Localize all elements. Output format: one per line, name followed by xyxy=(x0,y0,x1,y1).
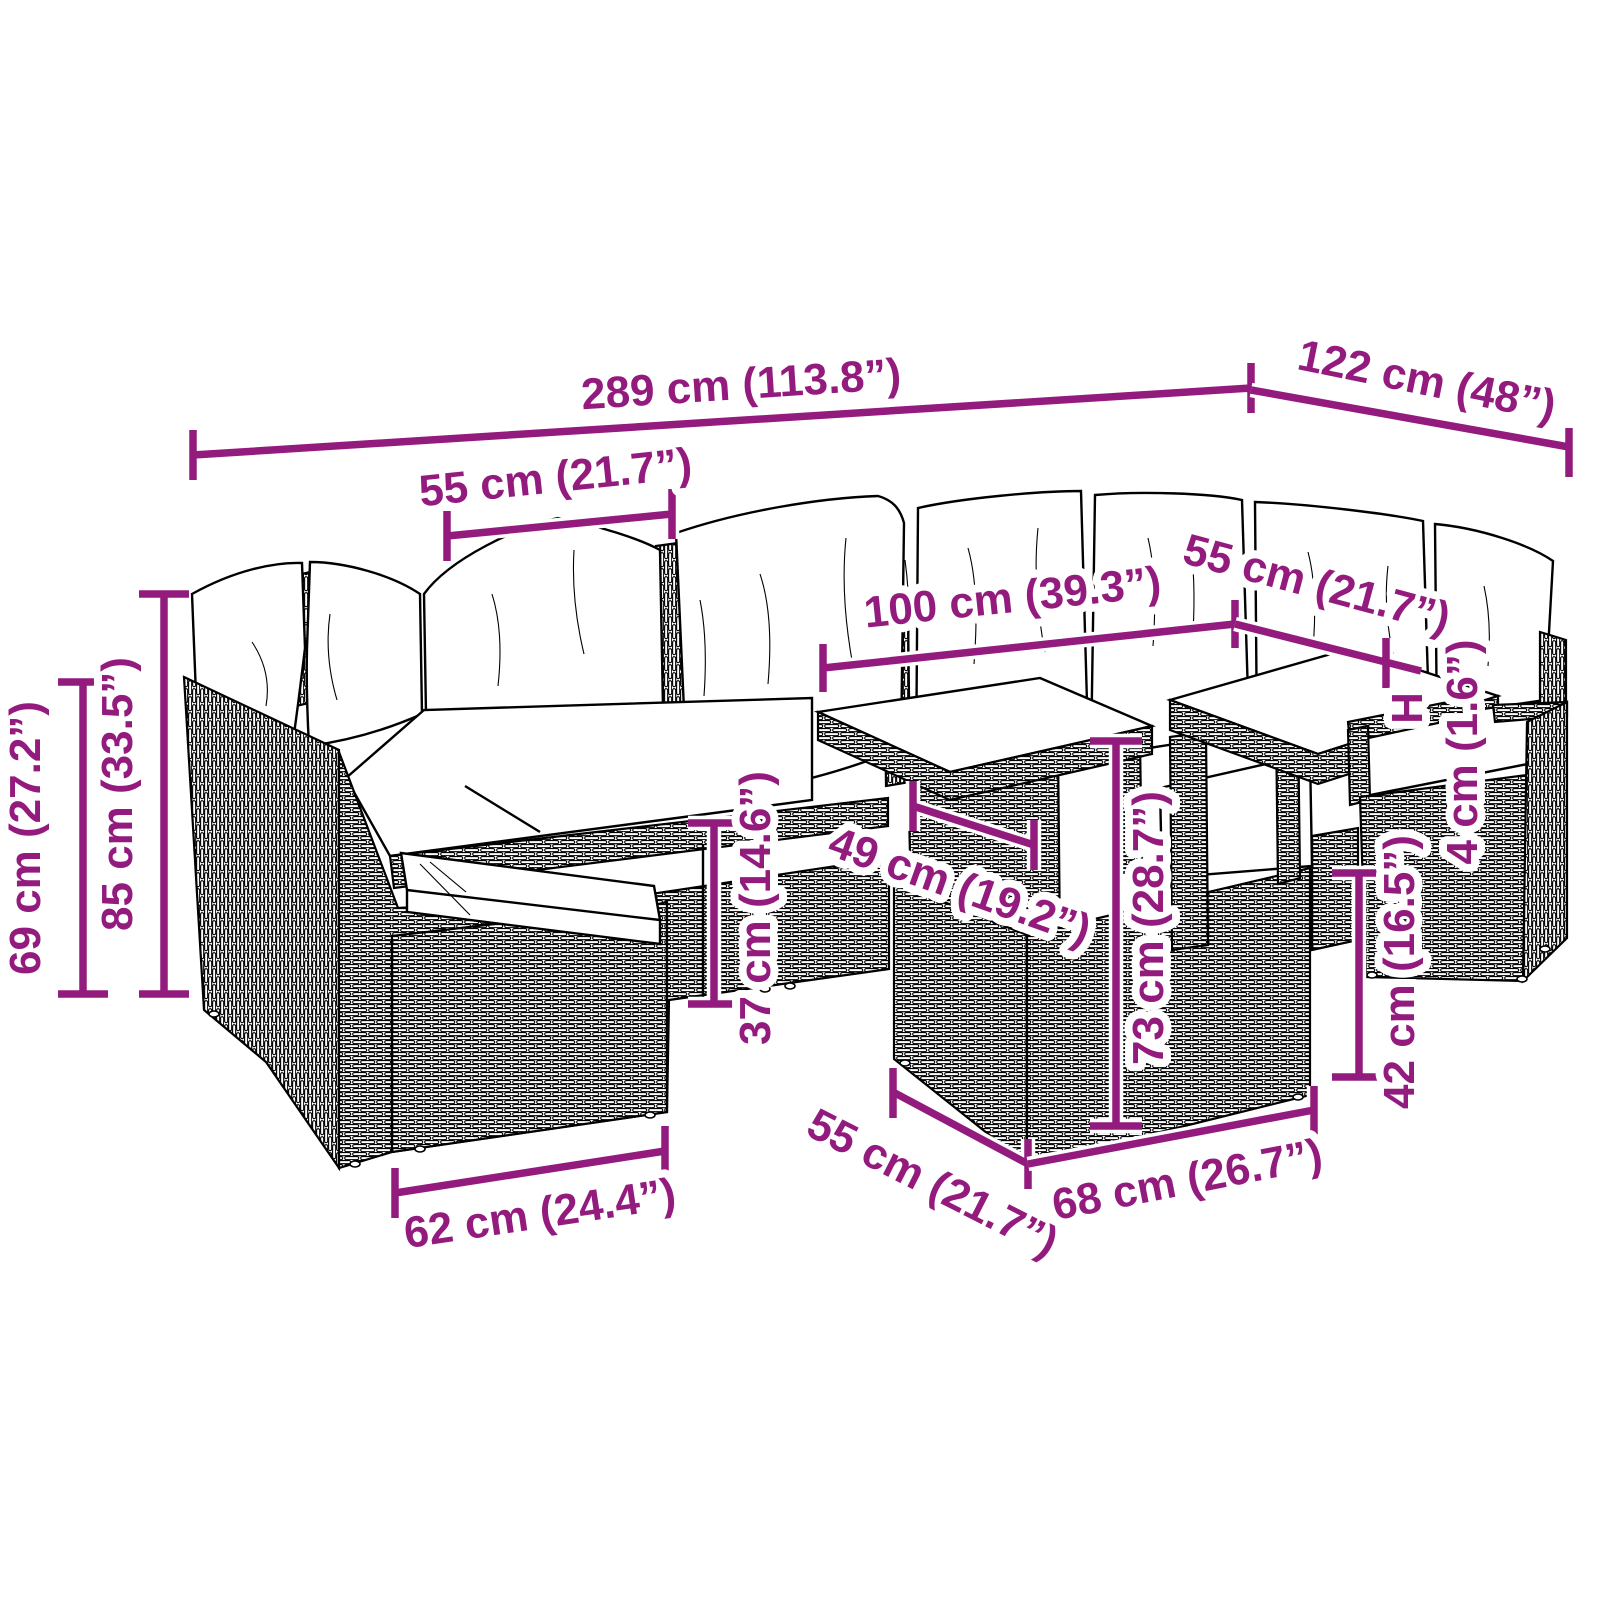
svg-text:42 cm (16.5”): 42 cm (16.5”) xyxy=(1375,835,1424,1109)
svg-text:4 cm (1.6”): 4 cm (1.6”) xyxy=(1438,640,1487,865)
svg-text:H: H xyxy=(1383,692,1432,724)
svg-text:69 cm (27.2”): 69 cm (27.2”) xyxy=(1,701,50,975)
svg-text:37 cm (14.6”): 37 cm (14.6”) xyxy=(731,771,780,1045)
svg-text:85 cm (33.5”): 85 cm (33.5”) xyxy=(93,657,142,931)
svg-text:73 cm (28.7”): 73 cm (28.7”) xyxy=(1124,791,1173,1065)
